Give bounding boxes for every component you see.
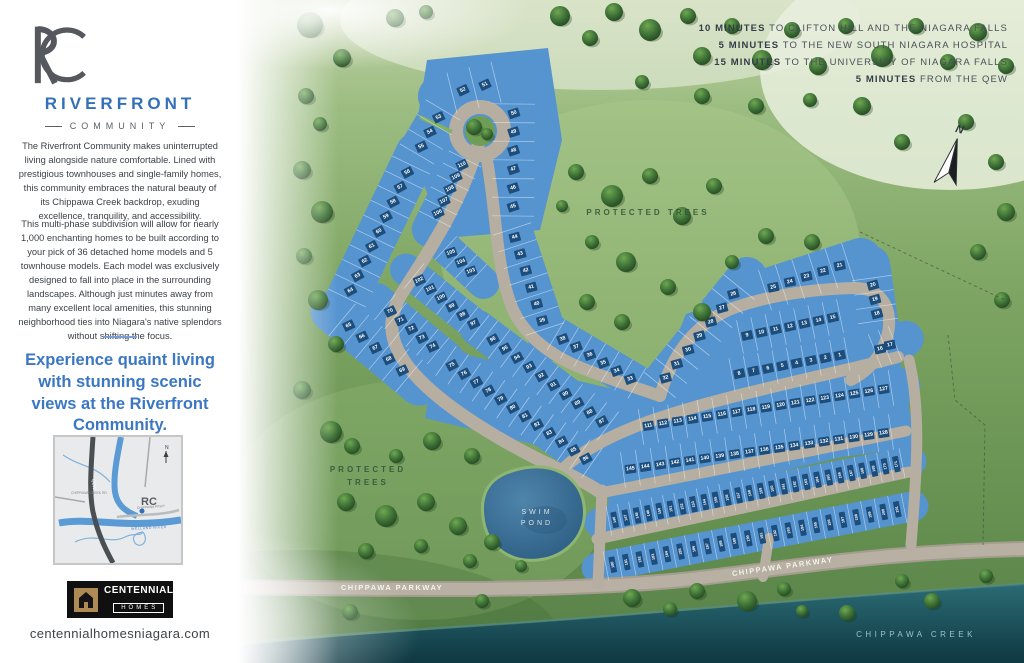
dash-line [178,126,195,127]
tree-icon [689,583,705,599]
builder-house-icon [74,588,98,612]
lot-number: 132 [819,438,829,445]
tree-icon [660,279,676,295]
tree-icon [475,594,489,608]
tree-icon [895,574,909,588]
lot-number: 137 [745,448,755,455]
lot-number: 139 [715,453,725,460]
distance-time: 10 MINUTES [699,23,766,34]
distance-time: 5 MINUTES [856,74,917,85]
brand-subname-row: COMMUNITY [0,121,240,131]
location-inset-map: QEW WELLAND RIVER CHIPPAWA PKWY CHIPPAWA… [53,435,183,565]
distance-item: 5 MINUTES FROM THE QEW [699,71,1008,88]
intro-paragraph-1: The Riverfront Community makes uninterru… [18,140,222,224]
distance-time: 15 MINUTES [714,57,781,68]
tree-icon [616,252,636,272]
inset-north-label: N [165,445,169,451]
tree-icon [556,200,568,212]
tree-icon [417,493,435,511]
tree-icon [344,438,360,454]
lot-number: 141 [685,457,695,464]
lot-number: 142 [670,459,680,466]
protected-trees-label-left: TREES [347,478,389,487]
builder-name: CENTENNIAL [104,585,173,596]
rc-monogram-icon [0,18,110,90]
builder-subname: HOMES [113,603,164,613]
inset-welland-label: WELLAND RIVER [131,525,167,531]
lot-number: 135 [775,444,785,451]
inset-qew-label: QEW [91,479,97,491]
lot-number: 111 [644,422,653,429]
protected-trees-label-right: PROTECTED TREES [586,208,709,217]
tree-icon [466,119,482,135]
lot-number: 133 [804,440,814,447]
tree-icon [924,593,940,609]
distance-list: 10 MINUTES TO CLIFTON HILL AND THE NIAGA… [699,20,1008,88]
tree-icon [582,30,598,46]
swim-pond-label: POND [521,520,553,527]
tree-icon [601,185,623,207]
tree-icon [796,605,808,617]
tree-icon [839,605,855,621]
road [598,490,602,584]
distance-time: 5 MINUTES [719,40,780,51]
tree-icon [358,543,374,559]
distance-dest: TO THE UNIVERSITY OF NIAGARA FALLS [781,57,1008,68]
tree-icon [614,314,630,330]
lot-number: 138 [730,451,740,458]
lot-number: 131 [834,436,844,443]
lot-number: 145 [626,465,636,472]
swim-pond-label: SWIM [521,509,552,516]
divider-line [103,336,137,338]
tree-icon [579,294,595,310]
lot-number: 130 [849,434,859,441]
lot-number: 143 [656,461,666,468]
intro-paragraph-2: This multi-phase subdivision will allow … [18,218,222,343]
distance-item: 15 MINUTES TO THE UNIVERSITY OF NIAGARA … [699,54,1008,71]
tree-icon [635,75,649,89]
riverfront-site-plan: 5251535455504948474645565758596061626364… [0,0,1024,663]
tree-icon [642,168,658,184]
tree-icon [804,234,820,250]
tree-icon [389,449,403,463]
tree-icon [515,560,527,572]
tree-icon [748,98,764,114]
lot-number: 144 [641,463,651,470]
tree-icon [853,97,871,115]
parkway-label: CHIPPAWA PARKWAY [341,583,443,592]
tree-icon [449,517,467,535]
tree-icon [979,569,993,583]
tree-icon [585,235,599,249]
tree-icon [550,6,570,26]
tree-icon [894,134,910,150]
tree-icon [568,164,584,180]
lot-number: 129 [864,432,874,439]
creek-label: CHIPPAWA CREEK [856,630,976,639]
distance-dest: FROM THE QEW [916,74,1008,85]
inset-site-dot [140,509,145,514]
inset-rc-mark: RC [141,496,157,508]
lot-number: 134 [790,442,800,449]
tree-icon [803,93,817,107]
centennial-homes-logo: CENTENNIAL HOMES [67,581,173,618]
tree-icon [464,448,480,464]
tree-icon [463,554,477,568]
brand-subname: COMMUNITY [70,121,171,131]
tree-icon [988,154,1004,170]
tree-icon [639,19,661,41]
tree-icon [758,228,774,244]
lot-number: 128 [879,429,889,436]
distance-dest: TO CLIFTON HILL AND THE NIAGARA FALLS [766,23,1008,34]
builder-text: CENTENNIAL HOMES [104,585,173,614]
website-url: centennialhomesniagara.com [0,626,240,641]
tree-icon [375,505,397,527]
inset-map-svg: QEW WELLAND RIVER CHIPPAWA PKWY CHIPPAWA… [55,437,181,563]
tree-icon [663,602,677,616]
tree-icon [623,589,641,607]
dash-line [45,126,62,127]
tree-icon [484,534,500,550]
distance-dest: TO THE NEW SOUTH NIAGARA HOSPITAL [779,40,1008,51]
tree-icon [694,88,710,104]
tree-icon [680,8,696,24]
info-panel: RIVERFRONT COMMUNITY The Riverfront Comm… [0,0,240,663]
lot-number: 136 [760,446,770,453]
inset-creek-rd-label: CHIPPAWA CREEK RD [71,491,107,495]
tree-icon [337,493,355,511]
tree-icon [994,292,1010,308]
tree-icon [693,303,711,321]
protected-trees-label-left: PROTECTED [330,465,406,474]
tree-icon [970,244,986,260]
tree-icon [423,432,441,450]
tree-icon [414,539,428,553]
distance-item: 10 MINUTES TO CLIFTON HILL AND THE NIAGA… [699,20,1008,37]
tree-icon [737,591,757,611]
brand-name: RIVERFRONT [0,94,240,114]
tree-icon [997,203,1015,221]
tree-icon [481,128,493,140]
tree-icon [706,178,722,194]
brand-logo-block: RIVERFRONT COMMUNITY [0,18,240,131]
tree-icon [605,3,623,21]
distance-item: 5 MINUTES TO THE NEW SOUTH NIAGARA HOSPI… [699,37,1008,54]
headline: Experience quaint living with stunning s… [16,350,224,437]
tree-icon [725,255,739,269]
lot-number: 140 [700,455,710,462]
tree-icon [777,582,791,596]
